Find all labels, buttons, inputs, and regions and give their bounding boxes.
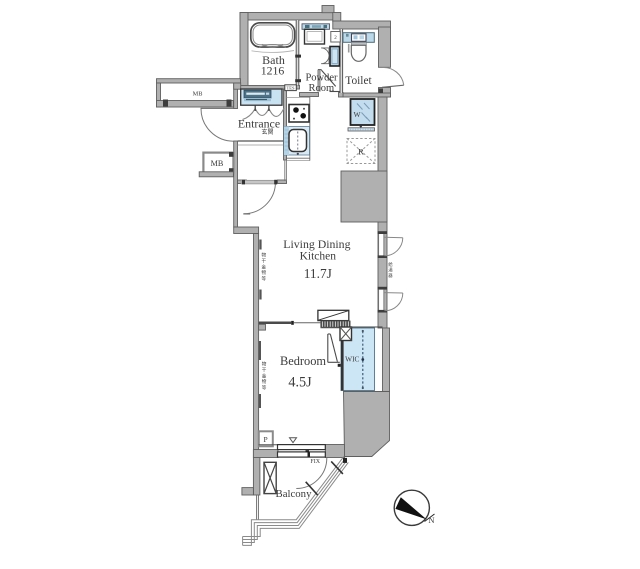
svg-text:R: R bbox=[358, 147, 364, 157]
svg-text:P: P bbox=[264, 435, 268, 444]
svg-text:物干金物等: 物干金物等 bbox=[262, 361, 267, 391]
svg-text:玄関: 玄関 bbox=[261, 128, 273, 136]
svg-text:物干金物等: 物干金物等 bbox=[261, 252, 266, 282]
svg-text:W: W bbox=[354, 110, 362, 119]
svg-text:Kitchen: Kitchen bbox=[300, 250, 337, 262]
svg-text:WIC: WIC bbox=[345, 355, 359, 364]
svg-text:給湯器: 給湯器 bbox=[388, 261, 393, 279]
svg-text:11.7J: 11.7J bbox=[304, 266, 332, 281]
svg-text:4.5J: 4.5J bbox=[288, 375, 312, 391]
svg-text:MB: MB bbox=[193, 90, 203, 97]
svg-text:Powder: Powder bbox=[305, 73, 338, 84]
svg-text:Bedroom: Bedroom bbox=[280, 354, 326, 368]
svg-text:FIX: FIX bbox=[310, 459, 320, 465]
svg-text:Room: Room bbox=[308, 83, 334, 94]
svg-text:Living Dining: Living Dining bbox=[283, 237, 350, 251]
svg-text:N: N bbox=[428, 515, 434, 525]
svg-text:Entrance: Entrance bbox=[238, 117, 280, 131]
svg-text:Toilet: Toilet bbox=[345, 75, 372, 87]
svg-text:TES: TES bbox=[286, 86, 294, 91]
svg-text:MB: MB bbox=[211, 159, 224, 168]
svg-text:Balcony: Balcony bbox=[276, 488, 313, 500]
svg-text:1216: 1216 bbox=[261, 64, 285, 78]
